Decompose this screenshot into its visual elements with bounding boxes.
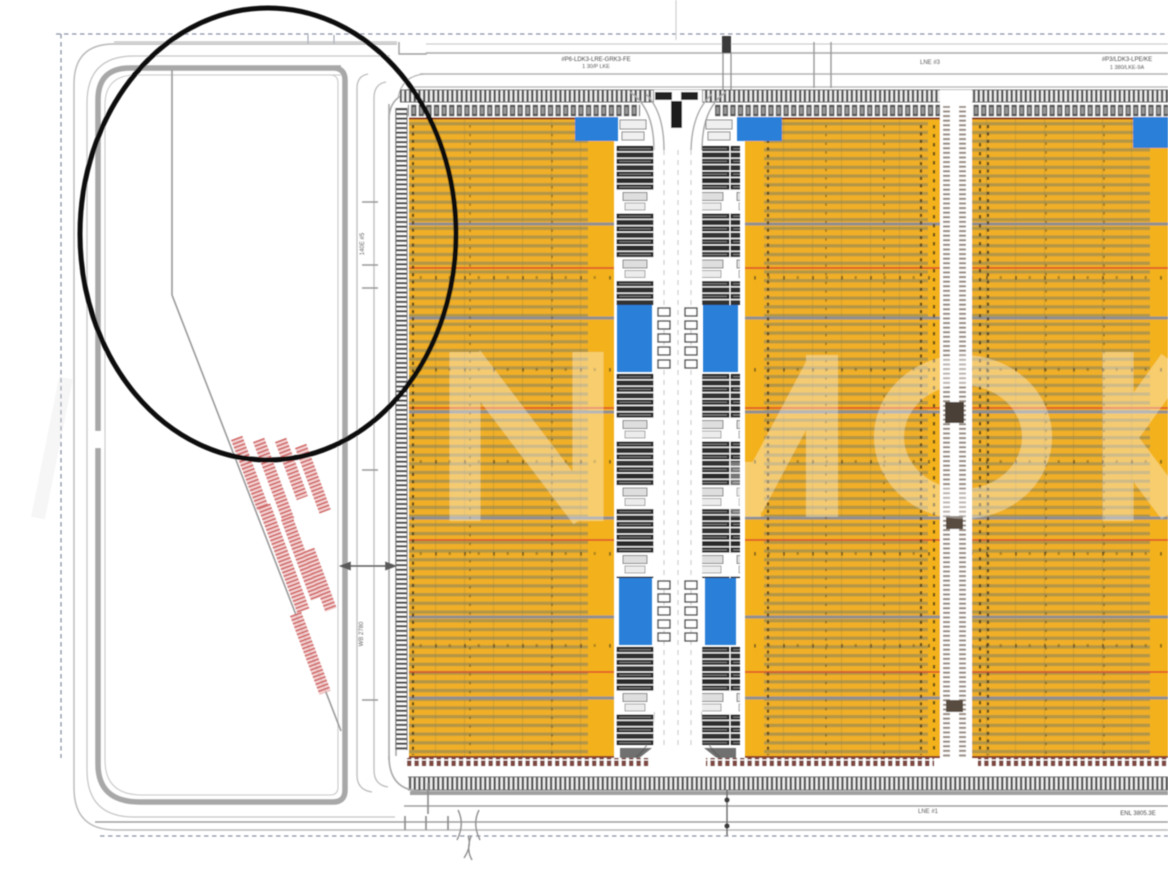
svg-text:1 30/P LKE: 1 30/P LKE xyxy=(582,64,610,70)
svg-text:LNE #3: LNE #3 xyxy=(920,60,941,66)
svg-text:#P6-LDK3-LRE-GRK3-FE: #P6-LDK3-LRE-GRK3-FE xyxy=(561,57,630,63)
svg-text:140E #5: 140E #5 xyxy=(360,232,366,255)
svg-text:ENL 3805.3E: ENL 3805.3E xyxy=(1120,811,1155,817)
svg-text:WB 2780: WB 2780 xyxy=(359,621,365,646)
svg-text:1 380/LKE-9A: 1 380/LKE-9A xyxy=(1110,65,1145,71)
svg-text:#P3/LDK3-LPE/KE: #P3/LDK3-LPE/KE xyxy=(1102,57,1152,63)
svg-text:LNE #1: LNE #1 xyxy=(918,809,939,815)
